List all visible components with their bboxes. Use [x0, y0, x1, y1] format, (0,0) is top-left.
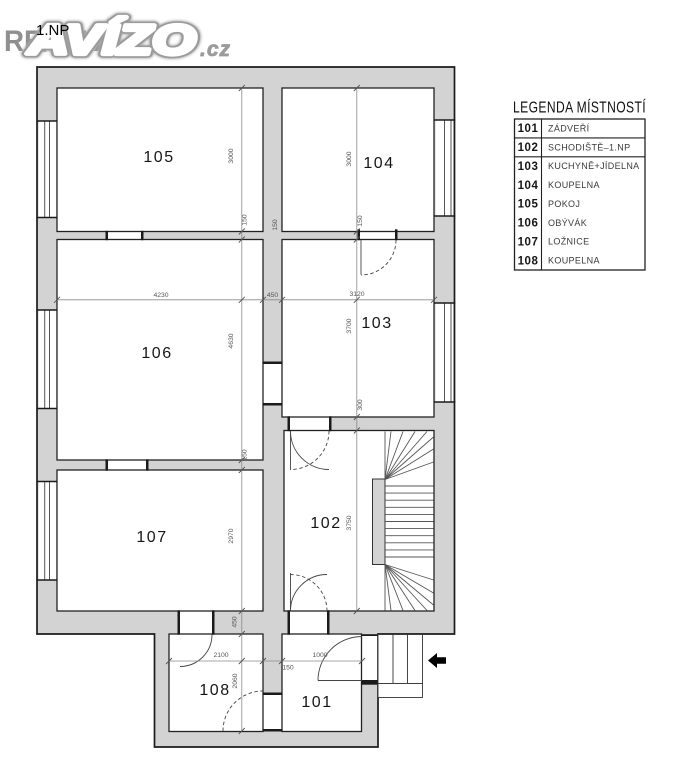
svg-text:3000: 3000 — [228, 148, 235, 163]
svg-text:2100: 2100 — [213, 652, 228, 659]
svg-text:3120: 3120 — [349, 291, 364, 298]
svg-text:104: 104 — [518, 180, 539, 192]
svg-text:3000: 3000 — [346, 151, 353, 166]
svg-text:3750: 3750 — [346, 515, 353, 530]
svg-text:ZÁDVEŘÍ: ZÁDVEŘÍ — [548, 123, 590, 133]
svg-text:SCHODIŠTĚ–1.NP: SCHODIŠTĚ–1.NP — [548, 142, 630, 152]
svg-text:KOUPELNA: KOUPELNA — [548, 180, 600, 190]
svg-text:450: 450 — [232, 616, 239, 628]
svg-text:LEGENDA MÍSTNOSTÍ: LEGENDA MÍSTNOSTÍ — [513, 100, 646, 117]
svg-text:4630: 4630 — [228, 333, 235, 348]
svg-text:150: 150 — [242, 214, 249, 226]
svg-text:108: 108 — [199, 682, 230, 699]
svg-text:OBÝVÁK: OBÝVÁK — [548, 218, 587, 228]
svg-text:101: 101 — [301, 694, 332, 711]
svg-text:KUCHYNĚ+JÍDELNA: KUCHYNĚ+JÍDELNA — [548, 161, 640, 171]
svg-text:105: 105 — [518, 199, 539, 211]
svg-text:150: 150 — [242, 449, 249, 461]
svg-text:LOŽNICE: LOŽNICE — [548, 237, 589, 247]
svg-text:103: 103 — [361, 315, 392, 332]
svg-text:POKOJ: POKOJ — [548, 199, 580, 209]
svg-text:106: 106 — [518, 218, 539, 230]
svg-text:KOUPELNA: KOUPELNA — [548, 256, 600, 266]
svg-text:300: 300 — [357, 399, 364, 411]
svg-text:.cz: .cz — [200, 38, 231, 61]
svg-text:2970: 2970 — [228, 528, 235, 543]
svg-text:101: 101 — [518, 123, 539, 135]
svg-text:106: 106 — [141, 345, 172, 362]
svg-text:4230: 4230 — [153, 292, 168, 299]
svg-text:1.NP: 1.NP — [36, 22, 69, 39]
svg-text:102: 102 — [518, 142, 539, 154]
svg-text:2060: 2060 — [232, 673, 239, 688]
svg-text:107: 107 — [136, 529, 167, 546]
svg-text:108: 108 — [518, 255, 539, 267]
svg-text:3700: 3700 — [346, 318, 353, 333]
svg-text:102: 102 — [310, 515, 341, 532]
svg-text:104: 104 — [363, 155, 394, 172]
svg-text:150: 150 — [282, 665, 294, 672]
svg-text:103: 103 — [518, 161, 539, 173]
svg-text:150: 150 — [272, 219, 279, 231]
svg-text:150: 150 — [357, 215, 364, 227]
svg-text:107: 107 — [518, 236, 539, 248]
svg-text:1000: 1000 — [312, 652, 327, 659]
svg-text:105: 105 — [143, 149, 174, 166]
svg-text:450: 450 — [267, 292, 279, 299]
